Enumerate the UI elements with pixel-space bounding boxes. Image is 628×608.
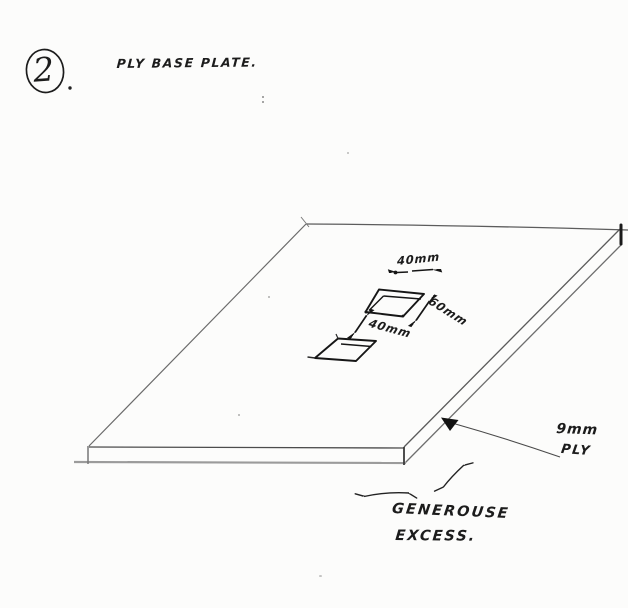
note-horizontal-double-arrow <box>364 493 409 497</box>
sketch-page: 2 PLY BASE PLATE. 40mm 60mm 40mm 9mm PLY… <box>0 0 628 608</box>
plate-back-edge <box>306 224 628 230</box>
pencil-speck <box>262 101 264 103</box>
plate-front-bottom-edge <box>74 462 406 463</box>
dim-spacing-arrow <box>355 316 367 333</box>
dim-width-arrow-left-blob <box>394 271 398 275</box>
cutout-large-outline <box>366 290 425 317</box>
cutout-large-corner-blob-left <box>365 311 368 314</box>
pencil-speck <box>347 152 349 154</box>
pencil-speck <box>262 96 264 98</box>
plate-front-top-edge <box>89 447 404 448</box>
sketch-linework <box>0 0 628 608</box>
page-title: PLY BASE PLATE. <box>116 57 258 71</box>
note-diagonal-double-arrow <box>443 465 464 488</box>
cutout-small-depth-top <box>341 344 372 347</box>
step-number: 2 <box>32 49 56 89</box>
step-period-dot <box>68 86 71 89</box>
note-line-2: EXCESS. <box>395 529 477 544</box>
plate-left-edge <box>89 224 306 446</box>
pencil-speck <box>238 414 240 416</box>
cutout-small-overshoot-top <box>336 334 338 339</box>
pencil-speck <box>268 296 270 298</box>
cutout-small-outline <box>315 339 376 362</box>
cutout-large-depth-top <box>384 296 422 299</box>
material-name-label: PLY <box>560 443 591 458</box>
cutout-large-corner-blob-bottom <box>402 315 405 318</box>
dim-width-arrow-right <box>412 270 433 272</box>
material-thickness-label: 9mm <box>556 422 599 437</box>
pencil-speck <box>319 575 322 577</box>
dim-width-arrow-left <box>397 272 408 273</box>
material-leader-line <box>452 423 560 457</box>
cutout-small-overshoot-left <box>308 357 316 358</box>
